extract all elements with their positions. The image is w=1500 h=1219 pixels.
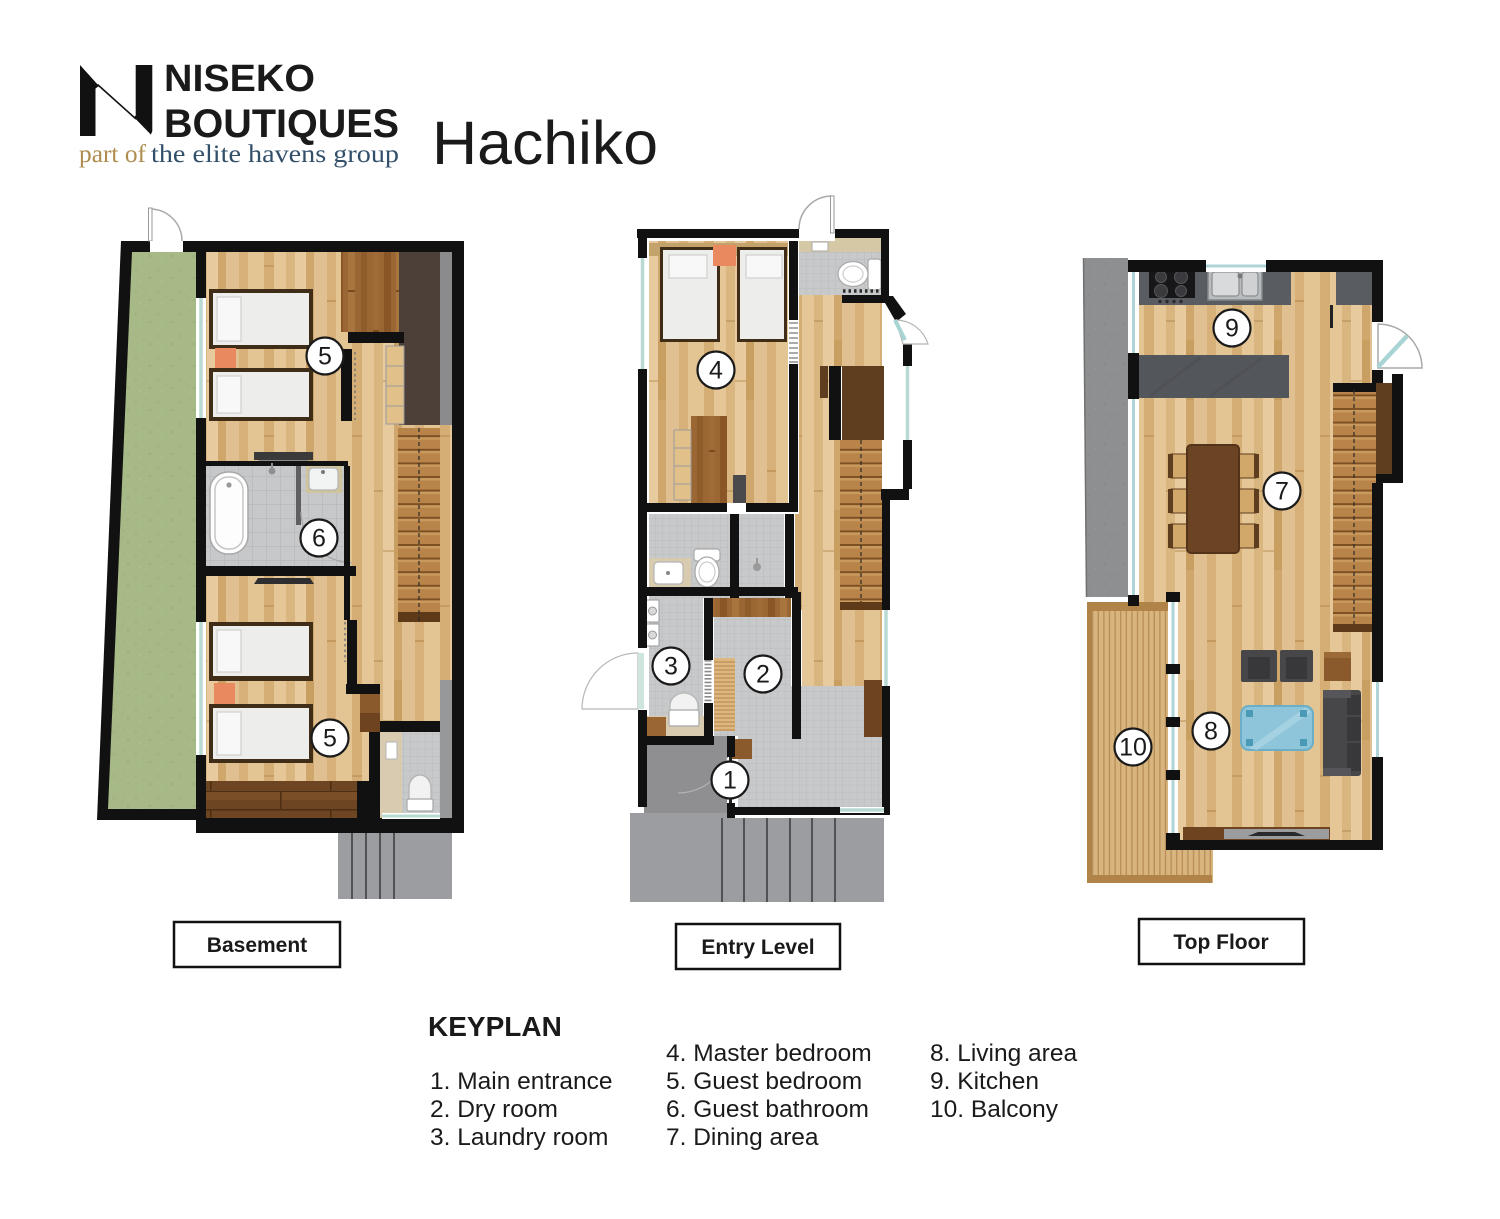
svg-text:2. Dry room: 2. Dry room xyxy=(430,1096,558,1123)
svg-text:6. Guest bathroom: 6. Guest bathroom xyxy=(666,1096,869,1123)
svg-text:Top Floor: Top Floor xyxy=(1173,931,1268,954)
svg-text:7: 7 xyxy=(1275,478,1289,506)
svg-text:8: 8 xyxy=(1204,718,1218,746)
svg-text:Hachiko: Hachiko xyxy=(432,109,658,177)
svg-text:4. Master bedroom: 4. Master bedroom xyxy=(666,1040,872,1067)
svg-text:the elite havens group: the elite havens group xyxy=(151,141,399,168)
svg-text:9. Kitchen: 9. Kitchen xyxy=(930,1068,1039,1095)
svg-text:part of: part of xyxy=(79,141,147,168)
svg-text:5: 5 xyxy=(318,343,332,371)
svg-text:10: 10 xyxy=(1119,734,1147,762)
svg-text:NISEKO: NISEKO xyxy=(164,58,315,100)
svg-text:1. Main entrance: 1. Main entrance xyxy=(430,1068,613,1095)
svg-text:3. Laundry room: 3. Laundry room xyxy=(430,1124,608,1151)
svg-text:5. Guest bedroom: 5. Guest bedroom xyxy=(666,1068,862,1095)
svg-text:6: 6 xyxy=(312,525,326,553)
svg-text:4: 4 xyxy=(709,357,723,385)
svg-text:BOUTIQUES: BOUTIQUES xyxy=(164,102,399,146)
svg-text:Basement: Basement xyxy=(207,934,307,957)
svg-text:8. Living area: 8. Living area xyxy=(930,1040,1077,1067)
svg-text:9: 9 xyxy=(1225,315,1239,343)
svg-text:10. Balcony: 10. Balcony xyxy=(930,1096,1059,1123)
svg-text:7. Dining area: 7. Dining area xyxy=(666,1124,819,1151)
svg-text:2: 2 xyxy=(756,661,770,689)
svg-text:Entry Level: Entry Level xyxy=(701,936,814,959)
svg-text:1: 1 xyxy=(723,767,737,795)
svg-text:5: 5 xyxy=(323,725,337,753)
svg-text:KEYPLAN: KEYPLAN xyxy=(428,1011,562,1042)
svg-text:3: 3 xyxy=(664,653,678,681)
